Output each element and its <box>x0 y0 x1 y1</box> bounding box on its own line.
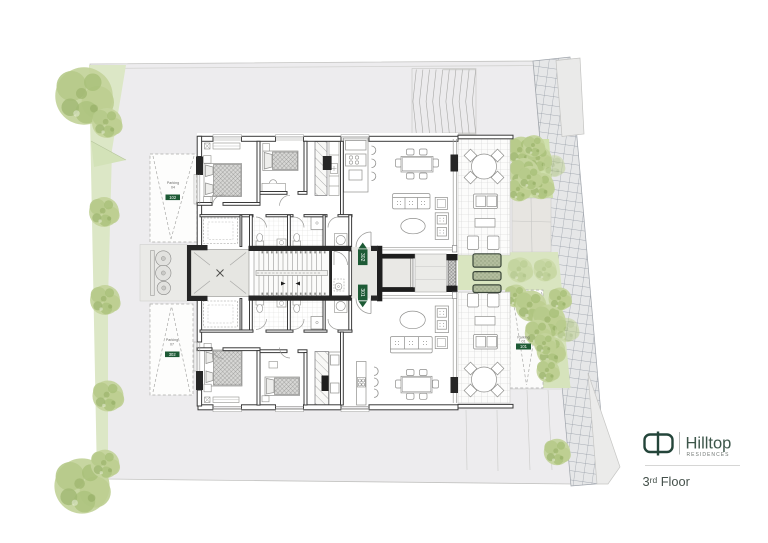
svg-text:301: 301 <box>359 288 365 297</box>
svg-text:302: 302 <box>359 253 365 262</box>
svg-text:3rd Floor: 3rd Floor <box>643 474 691 489</box>
svg-text:RESIDENCES: RESIDENCES <box>687 452 730 458</box>
svg-text:01: 01 <box>522 340 526 344</box>
svg-text:302: 302 <box>169 352 177 357</box>
svg-text:Hilltop: Hilltop <box>686 435 732 453</box>
svg-text:Parking: Parking <box>166 338 178 342</box>
svg-text:04: 04 <box>171 186 175 190</box>
svg-text:102: 102 <box>169 195 177 200</box>
svg-text:Parking: Parking <box>167 181 179 185</box>
svg-text:07: 07 <box>170 343 174 347</box>
svg-text:101: 101 <box>520 344 528 349</box>
